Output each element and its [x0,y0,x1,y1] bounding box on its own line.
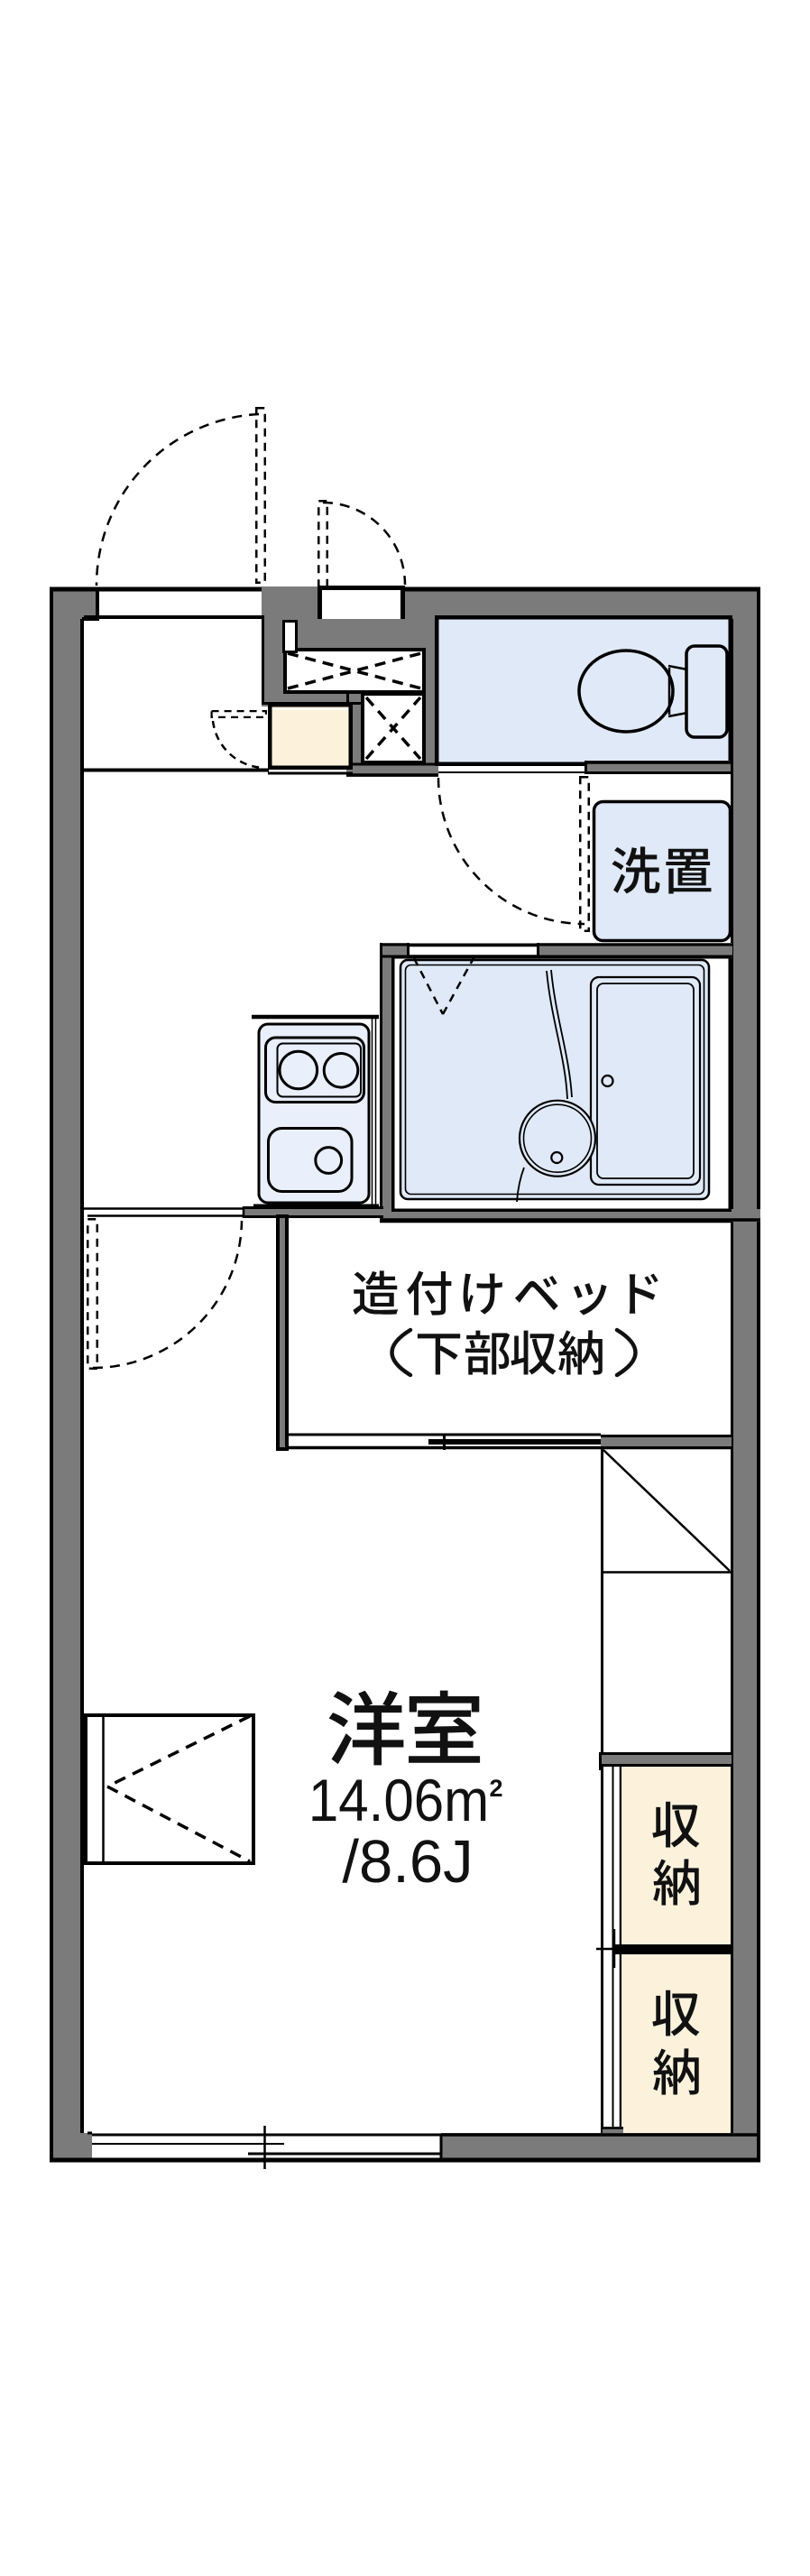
svg-text:14.06m: 14.06m [308,1768,489,1833]
svg-text:2: 2 [489,1775,502,1802]
svg-text:/8.6J: /8.6J [342,1828,473,1896]
